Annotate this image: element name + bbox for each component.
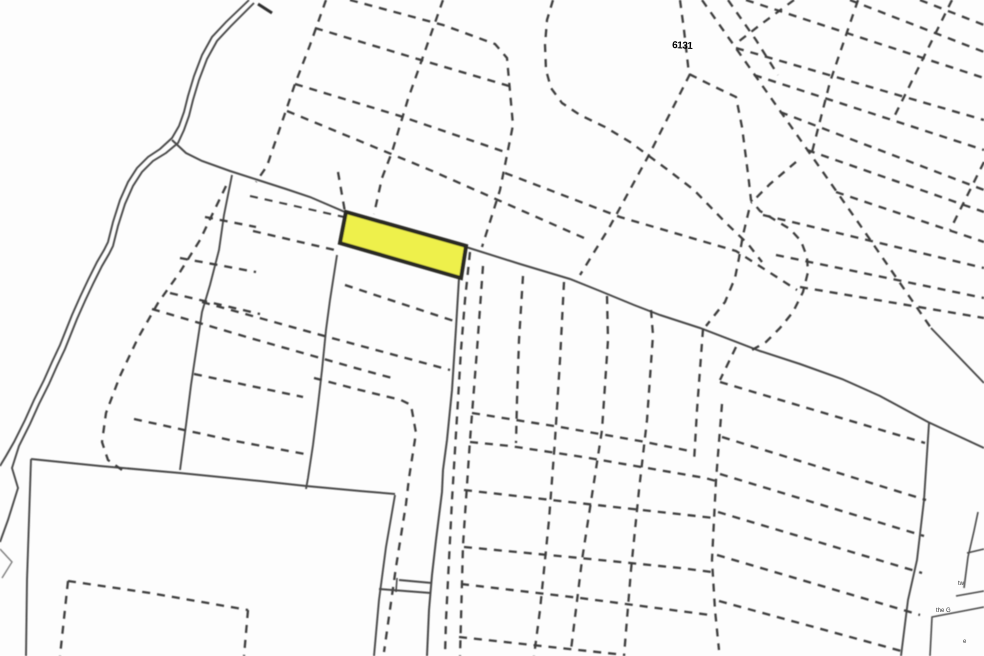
- svg-text:e: e: [963, 639, 967, 645]
- svg-text:tw: tw: [958, 581, 965, 587]
- svg-text:6131: 6131: [672, 40, 694, 52]
- svg-text:the G: the G: [936, 608, 951, 614]
